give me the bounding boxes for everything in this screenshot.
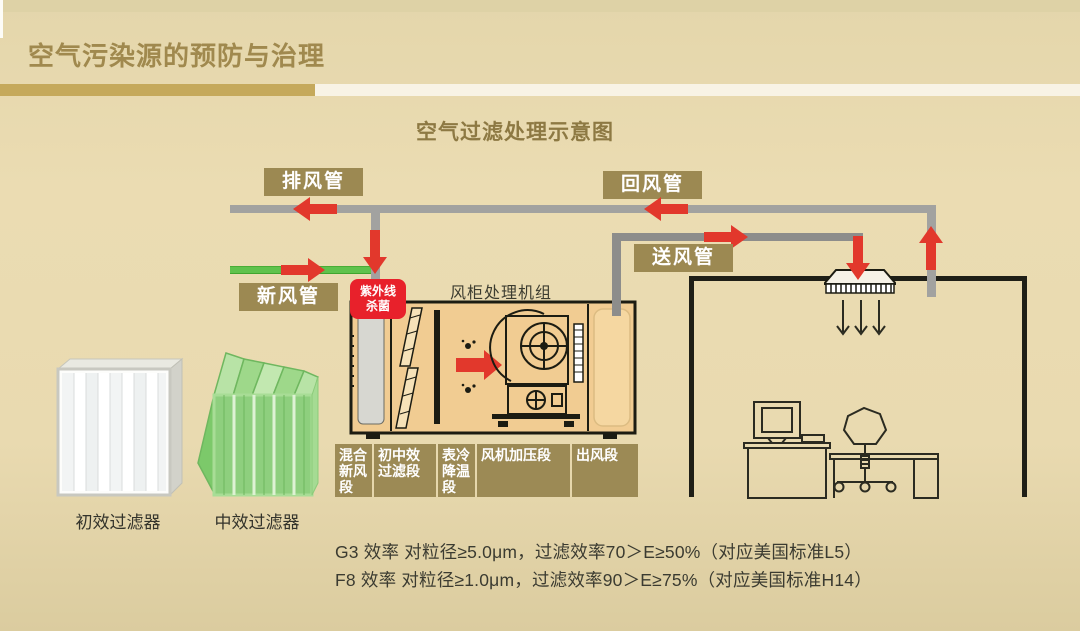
label-exhaust-duct: 排风管	[264, 168, 363, 196]
uv-badge-line1: 紫外线	[350, 284, 406, 299]
ahu-section-mixing: 混合 新风 段	[335, 444, 372, 497]
mixing-down-arrow	[363, 230, 387, 274]
fresh-air-flow-arrow	[281, 258, 325, 282]
title-underline-cream	[315, 84, 1080, 96]
diffuser-down-arrow	[846, 236, 870, 280]
medium-filter-caption: 中效过滤器	[187, 508, 327, 533]
label-return-duct: 回风管	[603, 171, 702, 199]
uv-sterilization-badge: 紫外线 杀菌	[350, 279, 406, 319]
primary-filter-caption: 初效过滤器	[48, 508, 188, 533]
ahu-section-filter: 初中效 过滤段	[374, 444, 436, 497]
ahu-section-fan: 风机加压段	[477, 444, 570, 497]
room-airflow-arrows	[835, 300, 889, 345]
medium-filter-image	[192, 343, 328, 506]
label-fresh-duct: 新风管	[239, 283, 338, 311]
note-g3: G3 效率 对粒径≥5.0μm，过滤效率70＞E≥50%（对应美国标准L5）	[335, 539, 862, 564]
room-return-up-arrow	[919, 226, 943, 270]
label-supply-duct: 送风管	[634, 244, 733, 272]
uv-badge-line2: 杀菌	[350, 299, 406, 314]
workstation-drawing	[738, 386, 943, 506]
top-accent-strip	[0, 0, 1080, 12]
title-underline-gold	[0, 84, 315, 96]
exhaust-flow-arrow	[293, 197, 337, 221]
note-f8: F8 效率 对粒径≥1.0μm，过滤效率90＞E≥75%（对应美国标准H14）	[335, 567, 872, 592]
corner-notch	[0, 0, 3, 38]
diagram-title: 空气过滤处理示意图	[400, 116, 630, 146]
primary-filter-image	[50, 355, 190, 508]
room-left-wall	[689, 276, 694, 497]
supply-riser-from-ahu	[612, 237, 621, 316]
ahu-section-cooling: 表冷 降温 段	[438, 444, 475, 497]
room-right-wall	[1022, 276, 1027, 497]
page-title: 空气污染源的预防与治理	[28, 36, 325, 73]
ahu-section-labels: 混合 新风 段 初中效 过滤段 表冷 降温 段 风机加压段 出风段	[335, 444, 638, 497]
ahu-section-outlet: 出风段	[572, 444, 638, 497]
return-flow-arrow	[644, 197, 688, 221]
